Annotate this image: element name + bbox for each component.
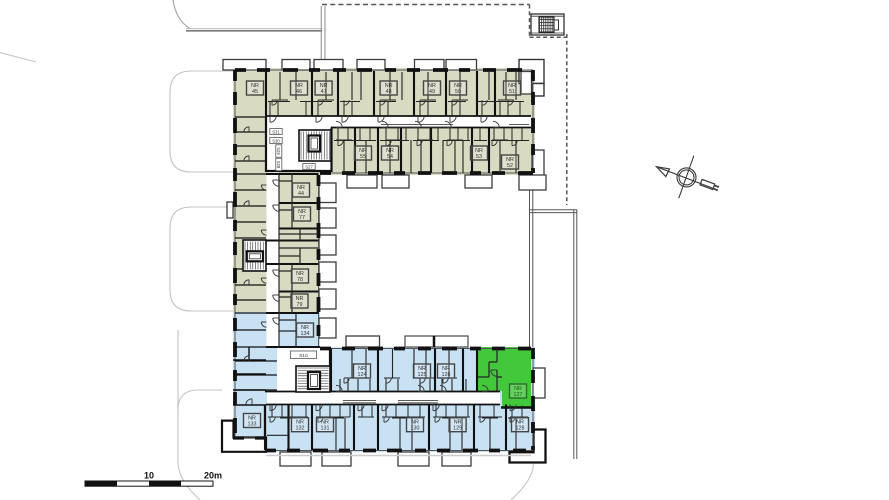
svg-text:132: 132 — [296, 426, 305, 432]
svg-text:NR: NR — [321, 420, 329, 426]
svg-text:78: 78 — [297, 277, 303, 283]
svg-text:77: 77 — [299, 215, 305, 221]
svg-text:44: 44 — [298, 191, 304, 197]
svg-text:NR: NR — [516, 420, 524, 426]
svg-text:53: 53 — [476, 154, 482, 160]
svg-text:47: 47 — [321, 89, 327, 95]
svg-text:S28: S28 — [276, 161, 281, 169]
svg-text:NR: NR — [296, 296, 304, 302]
svg-text:10: 10 — [144, 471, 154, 481]
svg-text:46: 46 — [296, 89, 302, 95]
svg-text:129: 129 — [453, 426, 462, 432]
svg-text:133: 133 — [248, 422, 257, 428]
svg-text:130: 130 — [411, 426, 420, 432]
svg-text:NR: NR — [298, 209, 306, 215]
svg-text:S29: S29 — [276, 147, 281, 155]
svg-text:NR: NR — [442, 366, 450, 372]
svg-text:NR: NR — [508, 83, 516, 89]
svg-text:52: 52 — [507, 163, 513, 169]
svg-text:NR: NR — [297, 185, 305, 191]
svg-text:20m: 20m — [204, 471, 222, 481]
svg-text:NR: NR — [320, 83, 328, 89]
svg-text:45: 45 — [252, 89, 258, 95]
svg-text:NR: NR — [296, 420, 304, 426]
svg-text:NR: NR — [514, 386, 522, 392]
svg-text:NR: NR — [359, 148, 367, 154]
svg-text:S27: S27 — [305, 164, 313, 169]
svg-text:124: 124 — [358, 372, 367, 378]
svg-text:NR: NR — [411, 420, 419, 426]
svg-text:NR: NR — [475, 148, 483, 154]
svg-text:NR: NR — [418, 366, 426, 372]
svg-text:NR: NR — [454, 83, 462, 89]
svg-text:NR: NR — [248, 415, 256, 421]
svg-text:48: 48 — [386, 89, 392, 95]
svg-text:54: 54 — [387, 154, 393, 160]
svg-text:50: 50 — [455, 89, 461, 95]
svg-text:NR: NR — [385, 83, 393, 89]
svg-text:79: 79 — [297, 302, 303, 308]
svg-text:49: 49 — [429, 89, 435, 95]
svg-text:131: 131 — [321, 426, 330, 432]
svg-text:128: 128 — [516, 426, 525, 432]
svg-text:NR: NR — [358, 366, 366, 372]
svg-text:NR: NR — [386, 148, 394, 154]
svg-text:125: 125 — [418, 372, 427, 378]
svg-text:NR: NR — [301, 325, 309, 331]
svg-text:S31: S31 — [272, 129, 280, 134]
svg-text:NR: NR — [251, 83, 259, 89]
svg-text:134: 134 — [301, 331, 310, 337]
svg-text:55: 55 — [360, 154, 366, 160]
svg-text:NR: NR — [428, 83, 436, 89]
svg-text:NR: NR — [506, 157, 514, 163]
svg-text:126: 126 — [442, 372, 451, 378]
svg-text:51: 51 — [509, 89, 515, 95]
svg-text:NR: NR — [295, 83, 303, 89]
svg-text:S30: S30 — [272, 138, 280, 143]
svg-text:127: 127 — [514, 392, 523, 398]
svg-text:S10: S10 — [299, 353, 308, 359]
svg-text:NR: NR — [296, 271, 304, 277]
svg-text:NR: NR — [454, 420, 462, 426]
